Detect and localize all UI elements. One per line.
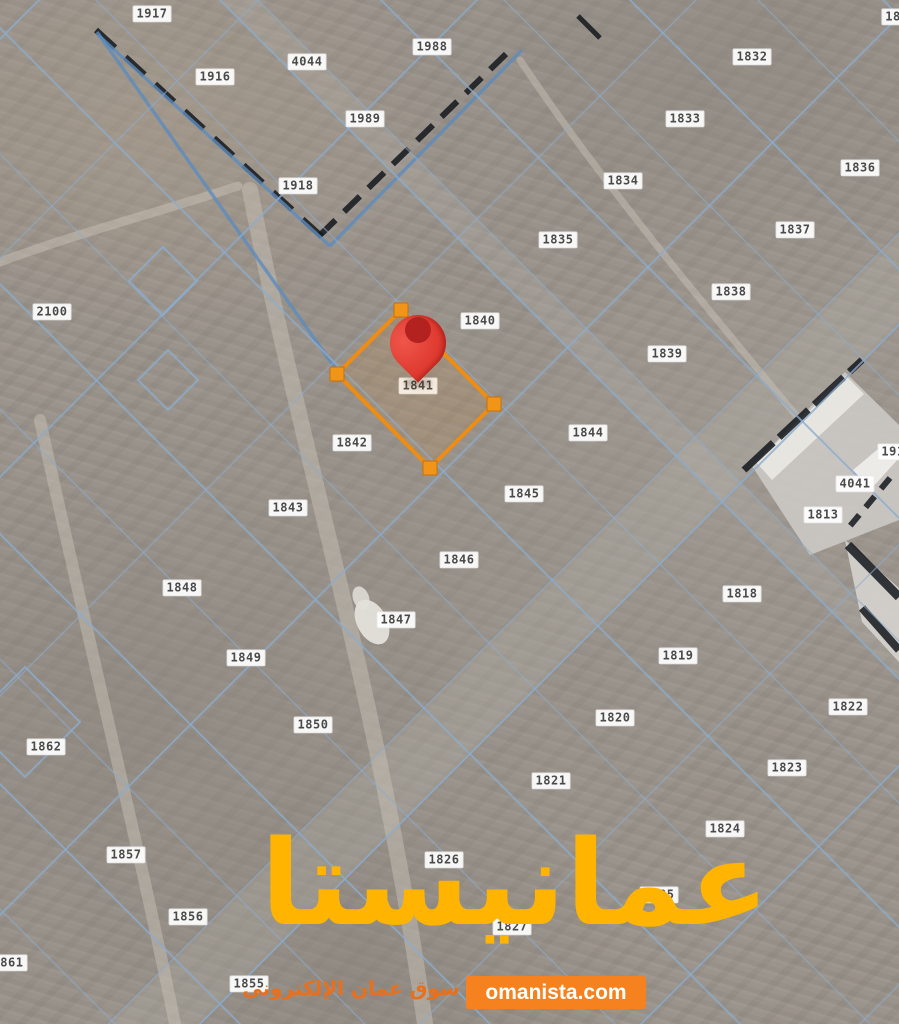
satellite-map[interactable]: 1917191640441988198919181818321833183418… bbox=[0, 0, 899, 1024]
watermark-domain-badge: omanista.com bbox=[466, 976, 646, 1009]
pin-inner-circle bbox=[405, 317, 431, 343]
watermark-tagline-arabic: سوق عمان الإلكتروني bbox=[240, 976, 462, 1000]
selected-plot-outline[interactable] bbox=[0, 0, 899, 1024]
watermark-domain-text: omanista.com bbox=[485, 981, 626, 1005]
